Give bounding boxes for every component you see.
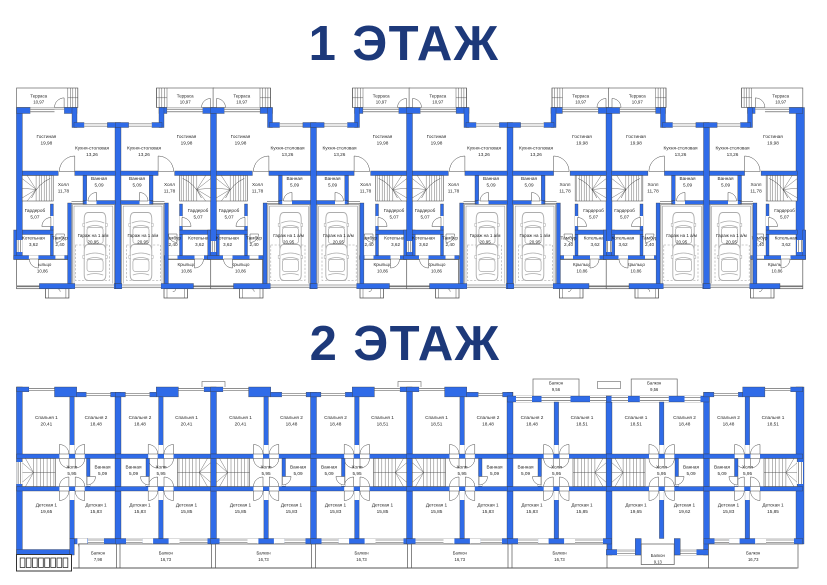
svg-text:Крыльцо: Крыльцо: [178, 262, 196, 267]
svg-text:16,73: 16,73: [455, 557, 466, 562]
svg-text:Гардероб: Гардероб: [384, 208, 405, 213]
svg-text:19,98: 19,98: [377, 140, 389, 145]
svg-text:Холл: Холл: [656, 465, 667, 470]
svg-text:Тамбур: Тамбур: [642, 236, 658, 241]
svg-text:15,85: 15,85: [235, 509, 247, 514]
svg-text:Гостиная: Гостиная: [231, 134, 251, 139]
svg-text:19,98: 19,98: [41, 140, 53, 145]
svg-text:Ванная: Ванная: [714, 465, 731, 470]
svg-text:Балкон: Балкон: [354, 551, 369, 556]
svg-text:Спальня 2: Спальня 2: [521, 415, 544, 420]
svg-text:19,62: 19,62: [679, 509, 691, 514]
svg-text:2,40: 2,40: [445, 242, 455, 247]
svg-text:Ванная: Ванная: [290, 465, 307, 470]
svg-text:18,48: 18,48: [134, 421, 146, 426]
svg-text:7,98: 7,98: [94, 557, 103, 562]
svg-text:15,83: 15,83: [286, 509, 298, 514]
svg-text:Кухня-столовая: Кухня-столовая: [663, 146, 697, 151]
svg-text:11,78: 11,78: [448, 188, 460, 193]
svg-text:Детская 1: Детская 1: [129, 503, 151, 508]
svg-text:5,95: 5,95: [657, 471, 667, 476]
svg-text:Балкон: Балкон: [549, 381, 564, 386]
svg-text:19,98: 19,98: [630, 140, 642, 145]
svg-text:18,51: 18,51: [431, 421, 443, 426]
svg-text:5,95: 5,95: [552, 471, 562, 476]
svg-text:Детская 1: Детская 1: [85, 503, 107, 508]
svg-text:Гардероб: Гардероб: [415, 208, 436, 213]
svg-text:15,85: 15,85: [767, 509, 779, 514]
svg-text:13,26: 13,26: [282, 152, 294, 157]
svg-text:20,95: 20,95: [726, 239, 738, 244]
svg-text:Котельная: Котельная: [775, 236, 798, 241]
svg-text:10,86: 10,86: [37, 268, 49, 273]
svg-text:5,95: 5,95: [457, 471, 467, 476]
svg-text:5,09: 5,09: [521, 471, 531, 476]
svg-text:3,62: 3,62: [391, 242, 401, 247]
svg-text:Терраса: Терраса: [429, 93, 446, 98]
svg-text:20,95: 20,95: [333, 239, 345, 244]
svg-text:15,83: 15,83: [723, 509, 735, 514]
svg-text:18,51: 18,51: [377, 421, 389, 426]
svg-text:Холл: Холл: [252, 182, 263, 187]
svg-text:Гостиная: Гостиная: [177, 134, 197, 139]
svg-text:2,40: 2,40: [564, 242, 574, 247]
svg-text:Детская 1: Детская 1: [625, 503, 647, 508]
svg-text:Котельная: Котельная: [22, 236, 45, 241]
svg-text:10,97: 10,97: [775, 100, 787, 105]
svg-text:Гардероб: Гардероб: [614, 208, 635, 213]
svg-text:Детская 1: Детская 1: [718, 503, 740, 508]
svg-text:Детская 1: Детская 1: [36, 503, 58, 508]
svg-text:13,26: 13,26: [675, 152, 687, 157]
svg-text:5,09: 5,09: [328, 182, 338, 187]
svg-text:20,95: 20,95: [87, 239, 99, 244]
svg-text:13,26: 13,26: [138, 152, 150, 157]
svg-text:Гостиная: Гостиная: [626, 134, 646, 139]
svg-text:Спальня 2: Спальня 2: [324, 415, 347, 420]
svg-text:Ванная: Ванная: [683, 465, 700, 470]
svg-text:10,86: 10,86: [577, 268, 589, 273]
svg-text:2,40: 2,40: [249, 242, 259, 247]
svg-text:Балкон: Балкон: [746, 551, 761, 556]
svg-text:Крыльцо: Крыльцо: [232, 262, 250, 267]
svg-text:15,85: 15,85: [181, 509, 193, 514]
svg-text:10,97: 10,97: [33, 100, 45, 105]
svg-text:Детская 1: Детская 1: [521, 503, 543, 508]
svg-text:11,78: 11,78: [58, 188, 70, 193]
svg-text:9,56: 9,56: [650, 387, 659, 392]
svg-text:Холл: Холл: [456, 465, 467, 470]
svg-text:11,78: 11,78: [750, 188, 762, 193]
svg-text:18,48: 18,48: [330, 421, 342, 426]
svg-text:Крыльцо: Крыльцо: [573, 262, 591, 267]
svg-text:10,97: 10,97: [180, 100, 192, 105]
svg-text:19,98: 19,98: [767, 140, 779, 145]
svg-text:5,07: 5,07: [389, 214, 399, 219]
svg-text:9,13: 9,13: [654, 559, 663, 564]
svg-text:20,41: 20,41: [181, 421, 193, 426]
svg-text:19,98: 19,98: [431, 140, 443, 145]
svg-text:5,09: 5,09: [683, 182, 693, 187]
svg-text:18,51: 18,51: [767, 421, 779, 426]
svg-text:Балкон: Балкон: [647, 381, 662, 386]
svg-text:10,86: 10,86: [377, 268, 389, 273]
svg-text:5,09: 5,09: [132, 182, 142, 187]
svg-text:10,86: 10,86: [772, 268, 784, 273]
svg-text:Балкон: Балкон: [256, 551, 271, 556]
svg-text:Ванная: Ванная: [679, 176, 696, 181]
svg-text:Детская 1: Детская 1: [571, 503, 593, 508]
svg-text:Ванная: Ванная: [125, 465, 142, 470]
svg-text:13,26: 13,26: [727, 152, 739, 157]
svg-text:Крыльцо: Крыльцо: [374, 262, 392, 267]
svg-text:Кухня-столовая: Кухня-столовая: [270, 146, 304, 151]
svg-text:20,41: 20,41: [235, 421, 247, 426]
svg-text:19,65: 19,65: [630, 509, 642, 514]
svg-text:Терраса: Терраса: [177, 93, 194, 98]
svg-text:Котельная: Котельная: [612, 236, 635, 241]
svg-text:10,97: 10,97: [376, 100, 388, 105]
svg-text:Холл: Холл: [155, 465, 166, 470]
svg-text:Детская 1: Детская 1: [674, 503, 696, 508]
svg-text:Спальня 2: Спальня 2: [129, 415, 152, 420]
svg-text:Крыльцо: Крыльцо: [428, 262, 446, 267]
svg-text:16,73: 16,73: [554, 557, 565, 562]
svg-text:Ванная: Ванная: [321, 465, 338, 470]
svg-text:Холл: Холл: [260, 465, 271, 470]
svg-text:20,95: 20,95: [529, 239, 541, 244]
svg-text:Детская 1: Детская 1: [426, 503, 448, 508]
svg-text:Балкон: Балкон: [159, 551, 174, 556]
svg-text:Ванная: Ванная: [517, 465, 534, 470]
svg-text:Детская 1: Детская 1: [281, 503, 303, 508]
svg-text:15,83: 15,83: [90, 509, 102, 514]
svg-text:5,07: 5,07: [30, 214, 40, 219]
svg-text:16,73: 16,73: [161, 557, 172, 562]
svg-text:Детская 1: Детская 1: [325, 503, 347, 508]
svg-text:5,09: 5,09: [490, 471, 500, 476]
svg-text:1 ЭТАЖ: 1 ЭТАЖ: [309, 17, 500, 71]
svg-text:5,95: 5,95: [352, 471, 362, 476]
svg-text:18,48: 18,48: [679, 421, 691, 426]
svg-text:19,98: 19,98: [235, 140, 247, 145]
svg-text:Холл: Холл: [66, 465, 77, 470]
svg-text:5,95: 5,95: [67, 471, 77, 476]
svg-text:18,48: 18,48: [482, 421, 494, 426]
svg-text:20,95: 20,95: [137, 239, 149, 244]
svg-text:3,62: 3,62: [29, 242, 39, 247]
svg-text:Тамбур: Тамбур: [561, 236, 577, 241]
svg-text:Гараж на 1 а/м: Гараж на 1 а/м: [520, 233, 551, 238]
svg-text:Ванная: Ванная: [91, 176, 108, 181]
svg-text:11,78: 11,78: [252, 188, 264, 193]
svg-text:Терраса: Терраса: [30, 93, 47, 98]
svg-text:Спальня 2: Спальня 2: [85, 415, 108, 420]
svg-text:Гараж на 1 а/м: Гараж на 1 а/м: [323, 233, 354, 238]
svg-text:19,98: 19,98: [576, 140, 588, 145]
svg-text:Балкон: Балкон: [651, 553, 666, 558]
svg-text:2,40: 2,40: [645, 242, 655, 247]
svg-text:Холл: Холл: [551, 465, 562, 470]
svg-text:Детская 1: Детская 1: [176, 503, 198, 508]
svg-text:Холл: Холл: [559, 182, 570, 187]
svg-text:Холл: Холл: [164, 182, 175, 187]
svg-text:10,97: 10,97: [632, 100, 644, 105]
svg-text:18,51: 18,51: [630, 421, 642, 426]
svg-text:5,09: 5,09: [129, 471, 139, 476]
svg-text:18,48: 18,48: [526, 421, 538, 426]
svg-text:10,86: 10,86: [631, 268, 643, 273]
svg-text:15,83: 15,83: [482, 509, 494, 514]
svg-text:Гардероб: Гардероб: [583, 208, 604, 213]
svg-text:Гараж на 1 а/м: Гараж на 1 а/м: [716, 233, 747, 238]
svg-text:20,41: 20,41: [41, 421, 53, 426]
svg-text:16,73: 16,73: [258, 557, 269, 562]
svg-text:13,26: 13,26: [334, 152, 346, 157]
svg-text:11,78: 11,78: [164, 188, 176, 193]
svg-text:Крыльцо: Крыльцо: [627, 262, 645, 267]
svg-text:2 ЭТАЖ: 2 ЭТАЖ: [310, 317, 501, 371]
svg-text:Спальня 1: Спальня 1: [425, 415, 448, 420]
svg-text:3,62: 3,62: [618, 242, 628, 247]
svg-text:Холл: Холл: [448, 182, 459, 187]
svg-text:5,07: 5,07: [780, 214, 790, 219]
svg-text:Гостиная: Гостиная: [427, 134, 447, 139]
svg-text:Холл: Холл: [647, 182, 658, 187]
svg-text:10,97: 10,97: [432, 100, 444, 105]
svg-text:Кухня-столовая: Кухня-столовая: [127, 146, 161, 151]
svg-text:Спальня 1: Спальня 1: [35, 415, 58, 420]
svg-text:5,09: 5,09: [717, 471, 727, 476]
svg-text:5,09: 5,09: [524, 182, 534, 187]
svg-text:15,83: 15,83: [526, 509, 538, 514]
svg-text:Гостиная: Гостиная: [37, 134, 57, 139]
svg-text:Спальня 2: Спальня 2: [280, 415, 303, 420]
svg-text:Балкон: Балкон: [552, 551, 567, 556]
svg-text:Холл: Холл: [750, 182, 761, 187]
svg-text:Кухня-столовая: Кухня-столовая: [75, 146, 109, 151]
svg-text:Спальня 1: Спальня 1: [762, 415, 785, 420]
svg-text:Спальня 1: Спальня 1: [625, 415, 648, 420]
svg-text:18,51: 18,51: [576, 421, 588, 426]
svg-text:11,78: 11,78: [559, 188, 571, 193]
svg-text:Гараж на 1 а/м: Гараж на 1 а/м: [470, 233, 501, 238]
svg-text:Ванная: Ванная: [324, 176, 341, 181]
svg-text:10,97: 10,97: [236, 100, 248, 105]
svg-text:Кухня-столовая: Кухня-столовая: [715, 146, 749, 151]
svg-text:Терраса: Терраса: [629, 93, 646, 98]
svg-text:2,40: 2,40: [168, 242, 178, 247]
svg-text:Гардероб: Гардероб: [219, 208, 240, 213]
svg-text:Холл: Холл: [742, 465, 753, 470]
svg-text:5,09: 5,09: [98, 471, 108, 476]
svg-text:Тамбур: Тамбур: [442, 236, 458, 241]
svg-text:3,62: 3,62: [781, 242, 791, 247]
svg-text:20,95: 20,95: [283, 239, 295, 244]
svg-text:Гардероб: Гардероб: [774, 208, 795, 213]
svg-text:11,78: 11,78: [647, 188, 659, 193]
svg-text:5,95: 5,95: [743, 471, 753, 476]
svg-text:5,95: 5,95: [261, 471, 271, 476]
svg-text:9,56: 9,56: [552, 387, 561, 392]
svg-text:5,09: 5,09: [486, 182, 496, 187]
svg-text:Терраса: Терраса: [373, 93, 390, 98]
svg-text:Гардероб: Гардероб: [25, 208, 46, 213]
svg-text:3,62: 3,62: [223, 242, 233, 247]
svg-text:3,62: 3,62: [590, 242, 600, 247]
svg-text:Ванная: Ванная: [483, 176, 500, 181]
svg-text:5,09: 5,09: [94, 182, 104, 187]
svg-text:Терраса: Терраса: [572, 93, 589, 98]
svg-text:5,09: 5,09: [721, 182, 731, 187]
svg-text:Гардероб: Гардероб: [188, 208, 209, 213]
svg-text:5,09: 5,09: [324, 471, 334, 476]
svg-text:Спальня 1: Спальня 1: [229, 415, 252, 420]
svg-text:Кухня-столовая: Кухня-столовая: [322, 146, 356, 151]
svg-text:3,62: 3,62: [195, 242, 205, 247]
svg-text:20,95: 20,95: [479, 239, 491, 244]
svg-text:Спальня 1: Спальня 1: [175, 415, 198, 420]
svg-text:Холл: Холл: [360, 182, 371, 187]
svg-text:16,73: 16,73: [748, 557, 759, 562]
svg-text:19,98: 19,98: [181, 140, 193, 145]
svg-text:Детская 1: Детская 1: [230, 503, 252, 508]
svg-text:Холл: Холл: [351, 465, 362, 470]
svg-text:Котельная: Котельная: [412, 236, 435, 241]
svg-text:5,07: 5,07: [420, 214, 430, 219]
svg-text:16,73: 16,73: [356, 557, 367, 562]
svg-text:Спальня 1: Спальня 1: [571, 415, 594, 420]
svg-text:5,09: 5,09: [290, 182, 300, 187]
svg-text:Ванная: Ванная: [486, 465, 503, 470]
svg-text:15,85: 15,85: [377, 509, 389, 514]
svg-text:5,07: 5,07: [589, 214, 599, 219]
svg-text:Гостиная: Гостиная: [763, 134, 783, 139]
svg-text:5,09: 5,09: [293, 471, 303, 476]
svg-text:Терраса: Терраса: [772, 93, 789, 98]
svg-text:15,83: 15,83: [134, 509, 146, 514]
svg-text:Балкон: Балкон: [453, 551, 468, 556]
svg-text:Детская 1: Детская 1: [477, 503, 499, 508]
svg-text:Спальня 2: Спальня 2: [477, 415, 500, 420]
svg-text:2,40: 2,40: [55, 242, 65, 247]
svg-text:18,48: 18,48: [90, 421, 102, 426]
svg-text:5,07: 5,07: [193, 214, 203, 219]
svg-text:11,78: 11,78: [360, 188, 372, 193]
svg-text:Гараж на 1 а/м: Гараж на 1 а/м: [666, 233, 697, 238]
svg-text:Гостиная: Гостиная: [373, 134, 393, 139]
svg-text:Ванная: Ванная: [717, 176, 734, 181]
svg-text:13,26: 13,26: [478, 152, 490, 157]
svg-text:Гараж на 1 а/м: Гараж на 1 а/м: [273, 233, 304, 238]
svg-text:5,07: 5,07: [620, 214, 630, 219]
svg-text:Спальня 2: Спальня 2: [673, 415, 696, 420]
svg-text:3,62: 3,62: [419, 242, 429, 247]
svg-text:10,86: 10,86: [181, 268, 193, 273]
svg-text:15,85: 15,85: [576, 509, 588, 514]
svg-text:Кухня-столовая: Кухня-столовая: [467, 146, 501, 151]
svg-text:2,40: 2,40: [364, 242, 374, 247]
svg-text:18,48: 18,48: [723, 421, 735, 426]
svg-text:Ванная: Ванная: [94, 465, 111, 470]
svg-text:Спальня 2: Спальня 2: [717, 415, 740, 420]
svg-text:Холл: Холл: [58, 182, 69, 187]
svg-text:10,86: 10,86: [235, 268, 247, 273]
svg-text:15,85: 15,85: [431, 509, 443, 514]
svg-text:Тамбур: Тамбур: [52, 236, 68, 241]
svg-text:Балкон: Балкон: [91, 551, 106, 556]
svg-text:Гараж на 1 а/м: Гараж на 1 а/м: [78, 233, 109, 238]
svg-text:13,26: 13,26: [86, 152, 98, 157]
svg-text:10,86: 10,86: [431, 268, 443, 273]
svg-text:Детская 1: Детская 1: [372, 503, 394, 508]
svg-text:5,09: 5,09: [686, 471, 696, 476]
svg-text:Ванная: Ванная: [129, 176, 146, 181]
svg-text:Гостиная: Гостиная: [572, 134, 592, 139]
svg-text:10,97: 10,97: [575, 100, 587, 105]
svg-text:13,26: 13,26: [530, 152, 542, 157]
svg-text:Гараж на 1 а/м: Гараж на 1 а/м: [128, 233, 159, 238]
svg-text:Ванная: Ванная: [521, 176, 538, 181]
svg-text:Котельная: Котельная: [216, 236, 239, 241]
svg-text:Кухня-столовая: Кухня-столовая: [519, 146, 553, 151]
svg-text:Тамбур: Тамбур: [246, 236, 262, 241]
svg-text:19,65: 19,65: [41, 509, 53, 514]
svg-text:Терраса: Терраса: [233, 93, 250, 98]
svg-text:5,07: 5,07: [224, 214, 234, 219]
svg-text:18,48: 18,48: [286, 421, 298, 426]
svg-text:20,95: 20,95: [676, 239, 688, 244]
svg-text:5,95: 5,95: [156, 471, 166, 476]
svg-text:Детская 1: Детская 1: [762, 503, 784, 508]
svg-text:Ванная: Ванная: [286, 176, 303, 181]
svg-text:Спальня 1: Спальня 1: [371, 415, 394, 420]
svg-text:15,83: 15,83: [330, 509, 342, 514]
